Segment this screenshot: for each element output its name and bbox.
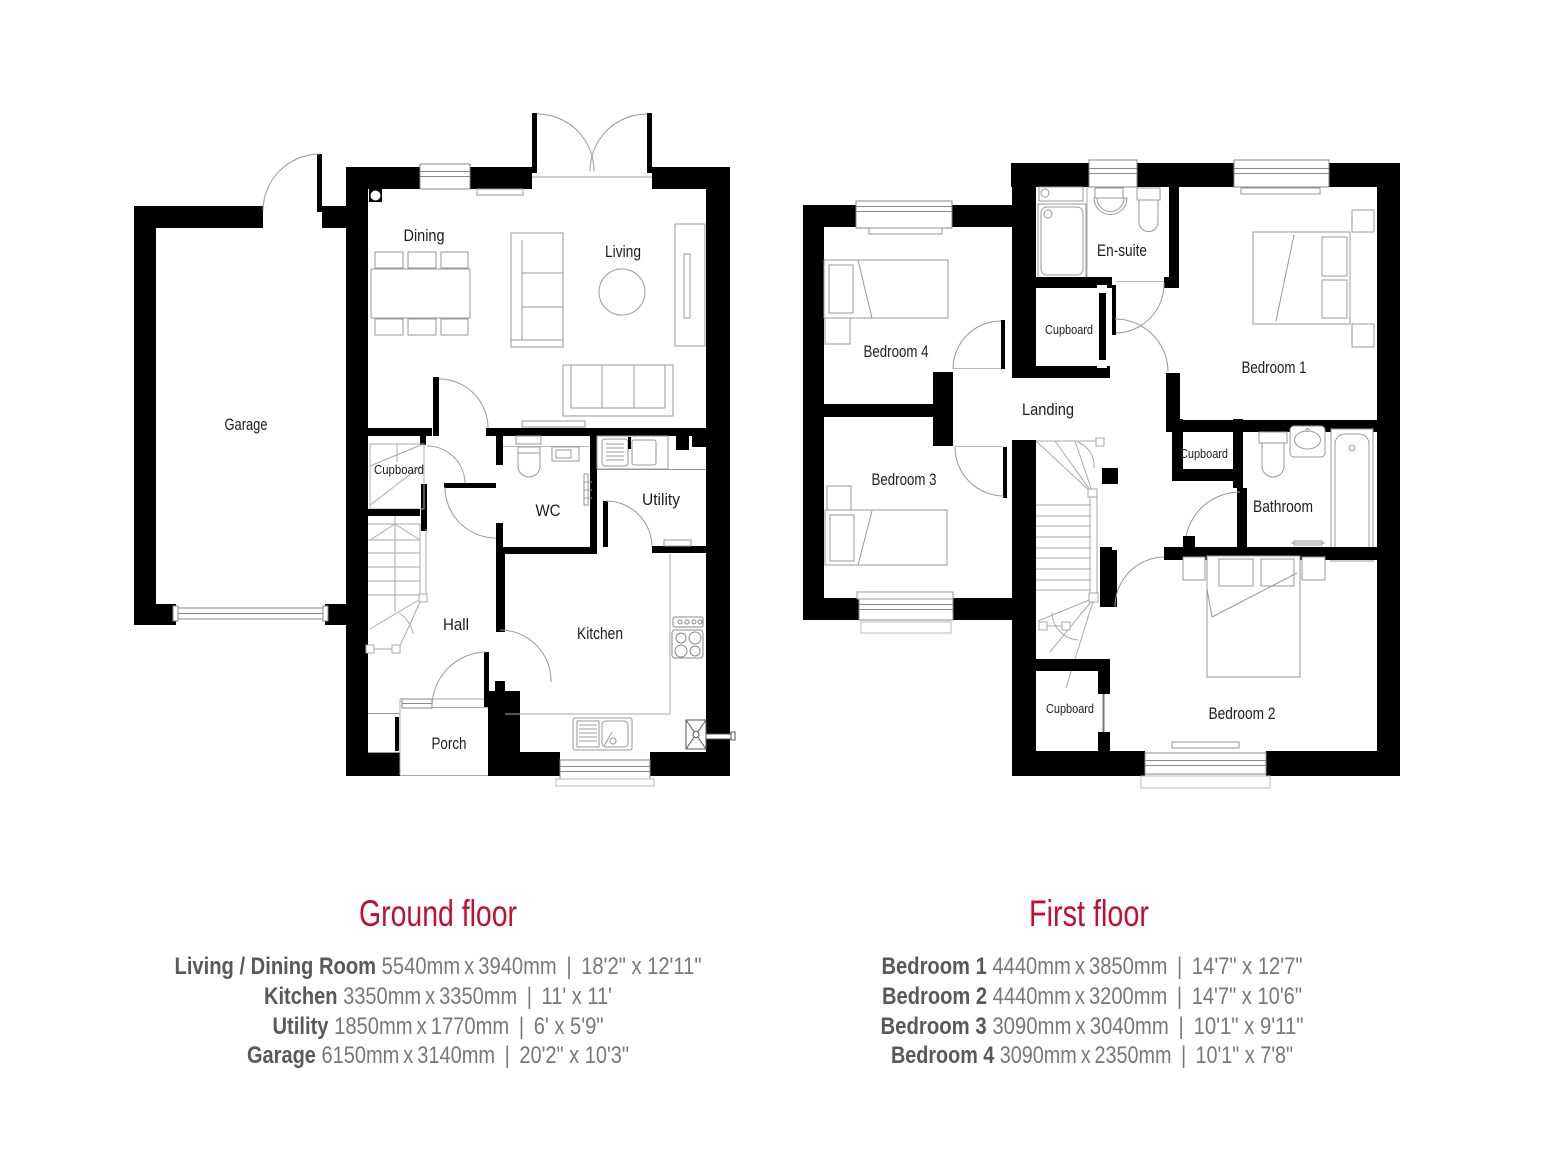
svg-text:Living / Dining Room 5540mm x: Living / Dining Room 5540mm x 3940mm | 1… <box>175 953 702 980</box>
svg-text:Bedroom 4 3090mm x 2350mm |: Bedroom 4 3090mm x 2350mm | 10'1" x 7'8" <box>891 1042 1293 1069</box>
svg-text:Bedroom 1 4440mm x 3850mm |: Bedroom 1 4440mm x 3850mm | 14'7" x 12'7… <box>882 953 1303 980</box>
svg-text:Kitchen: Kitchen <box>577 624 623 643</box>
svg-text:Garage 6150mm x 3140mm | 20': Garage 6150mm x 3140mm | 20'2" x 10'3" <box>247 1042 629 1069</box>
svg-text:Ground floor: Ground floor <box>359 893 517 934</box>
svg-text:Bedroom 4: Bedroom 4 <box>864 342 929 361</box>
svg-text:WC: WC <box>536 501 561 520</box>
svg-text:Cupboard: Cupboard <box>1046 702 1094 716</box>
svg-text:Utility 1850mm x 1770mm | 6': Utility 1850mm x 1770mm | 6' x 5'9" <box>273 1013 604 1040</box>
svg-text:Porch: Porch <box>432 734 467 753</box>
svg-text:Cupboard: Cupboard <box>1045 323 1093 337</box>
svg-text:Bedroom 3 3090mm x 3040mm |: Bedroom 3 3090mm x 3040mm | 10'1" x 9'11… <box>881 1013 1304 1040</box>
svg-text:Cupboard: Cupboard <box>1180 447 1228 461</box>
svg-text:Bedroom 3: Bedroom 3 <box>872 470 937 489</box>
svg-text:Bedroom 2: Bedroom 2 <box>1209 704 1276 723</box>
svg-text:Bedroom 1: Bedroom 1 <box>1242 358 1307 377</box>
svg-text:Garage: Garage <box>225 415 268 434</box>
svg-text:Bedroom 2 4440mm x 3200mm |: Bedroom 2 4440mm x 3200mm | 14'7" x 10'6… <box>882 983 1302 1010</box>
svg-text:Hall: Hall <box>443 615 469 634</box>
svg-text:En-suite: En-suite <box>1097 241 1147 260</box>
svg-text:Cupboard: Cupboard <box>374 463 424 477</box>
svg-text:Kitchen 3350mm x 3350mm | 11: Kitchen 3350mm x 3350mm | 11' x 11' <box>264 983 612 1010</box>
svg-text:Dining: Dining <box>404 226 445 245</box>
svg-text:First floor: First floor <box>1029 893 1149 934</box>
svg-text:Landing: Landing <box>1022 400 1074 419</box>
svg-text:Bathroom: Bathroom <box>1253 497 1313 516</box>
svg-text:Living: Living <box>605 242 641 261</box>
svg-text:Utility: Utility <box>642 490 680 509</box>
